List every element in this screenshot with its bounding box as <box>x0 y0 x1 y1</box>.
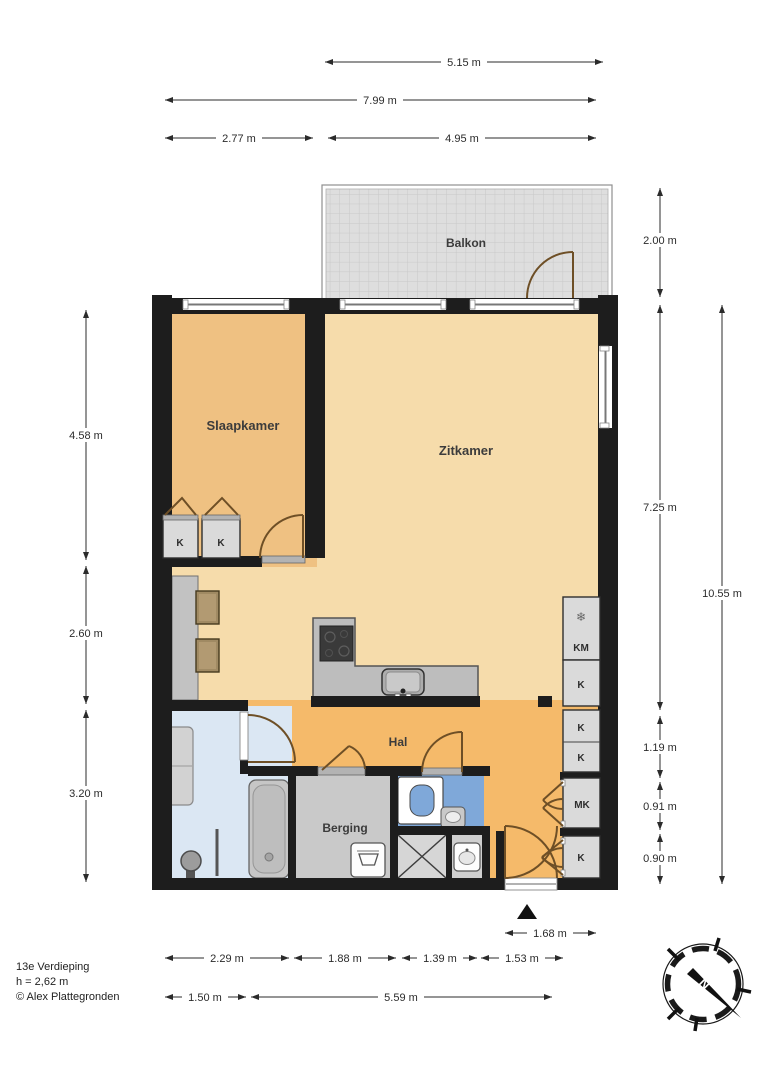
svg-text:2.00 m: 2.00 m <box>643 235 677 247</box>
svg-text:7.99 m: 7.99 m <box>363 95 397 107</box>
wall-entry-stub <box>496 831 505 878</box>
entrance-arrow <box>517 904 537 919</box>
label-closet-km: KM <box>573 643 589 654</box>
dim-top-799: 7.99 m <box>165 93 596 107</box>
wall-basinroom-right <box>482 826 490 878</box>
toilet-icon <box>398 777 443 824</box>
dim-bottom-188: 1.88 m <box>294 951 396 965</box>
window-living-right <box>470 299 579 310</box>
svg-text:1.50 m: 1.50 m <box>188 992 222 1004</box>
dim-bottom-139: 1.39 m <box>402 951 477 965</box>
dim-right-1055: 10.55 m <box>696 305 749 884</box>
label-closet-mk: MK <box>574 800 590 811</box>
dim-right-200: 2.00 m <box>637 188 683 297</box>
wall-berging-wc-divider <box>390 766 398 878</box>
label-closet-k: K <box>577 853 585 864</box>
dim-right-090: 0.90 m <box>637 834 683 884</box>
label-closet-k: K <box>577 753 585 764</box>
bar-stool <box>196 639 219 672</box>
svg-text:1.68 m: 1.68 m <box>533 928 567 940</box>
svg-text:0.91 m: 0.91 m <box>643 801 677 813</box>
label-closet-k: K <box>577 723 585 734</box>
window-east <box>599 346 612 428</box>
window-living-left <box>340 299 446 310</box>
svg-text:1.53 m: 1.53 m <box>505 953 539 965</box>
wall-bath-berging-divider <box>288 766 296 878</box>
wall-bathroom-top <box>152 700 248 711</box>
dim-bottom-168: 1.68 m <box>505 926 596 940</box>
dim-right-091: 0.91 m <box>637 782 683 830</box>
wall-hal-c <box>462 766 490 776</box>
side-counter <box>172 576 198 700</box>
svg-text:1.39 m: 1.39 m <box>423 953 457 965</box>
floorplan-page: Balkon Slaapkamer Zitkamer Hal Berging K… <box>0 0 764 1080</box>
floorplan-canvas: Balkon Slaapkamer Zitkamer Hal Berging K… <box>0 0 764 1080</box>
label-closet-k: K <box>217 538 225 549</box>
dim-bottom-559: 5.59 m <box>251 990 552 1004</box>
bathtub <box>249 780 289 878</box>
label-slaapkamer: Slaapkamer <box>207 418 280 433</box>
dim-right-725: 7.25 m <box>637 305 683 710</box>
svg-text:2.60 m: 2.60 m <box>69 628 103 640</box>
svg-text:7.25 m: 7.25 m <box>643 502 677 514</box>
wall-left <box>152 295 172 890</box>
label-closet-k: K <box>176 538 184 549</box>
svg-text:3.20 m: 3.20 m <box>69 788 103 800</box>
hand-basin-icon <box>441 807 465 828</box>
wall-wc-bottom <box>394 826 486 835</box>
utility-column <box>561 597 600 878</box>
bathroom-door-sill <box>240 712 248 760</box>
svg-text:2.29 m: 2.29 m <box>210 953 244 965</box>
front-door-sill <box>505 878 557 890</box>
svg-text:4.58 m: 4.58 m <box>69 430 103 442</box>
dim-bottom-150: 1.50 m <box>165 990 246 1004</box>
bar-stool <box>196 591 219 624</box>
wall-hal-stub <box>538 696 552 707</box>
basin-icon <box>454 843 480 871</box>
svg-text:4.95 m: 4.95 m <box>445 133 479 145</box>
north-needle <box>687 968 741 1018</box>
dim-left-320: 3.20 m <box>63 710 109 882</box>
snowflake-icon: ❄ <box>576 610 586 624</box>
window-bedroom <box>183 299 289 310</box>
wall-duct-divider <box>446 833 452 878</box>
wall-hal-a <box>248 766 318 776</box>
washing-machine-icon <box>351 843 385 877</box>
dim-top-495: 4.95 m <box>328 131 596 145</box>
dim-top-515: 5.15 m <box>325 55 603 69</box>
dim-left-260: 2.60 m <box>63 566 109 704</box>
svg-text:1.88 m: 1.88 m <box>328 953 362 965</box>
kitchen-sink <box>382 669 424 699</box>
bedroom-door-sill <box>262 556 305 563</box>
label-balkon: Balkon <box>446 236 486 250</box>
dim-bottom-153: 1.53 m <box>481 951 563 965</box>
cooktop <box>320 626 353 661</box>
footer-ceiling-height: h = 2,62 m <box>16 976 68 988</box>
dim-top-277: 2.77 m <box>165 131 313 145</box>
svg-text:2.77 m: 2.77 m <box>222 133 256 145</box>
wall-bedroom-right <box>305 298 325 558</box>
wall-kitchen <box>311 696 480 707</box>
footer-copyright: © Alex Plattegronden <box>16 991 120 1003</box>
footer: 13e Verdieping h = 2,62 m © Alex Platteg… <box>16 961 120 1003</box>
svg-text:5.15 m: 5.15 m <box>447 57 481 69</box>
label-berging: Berging <box>322 821 367 835</box>
label-hal: Hal <box>389 735 408 749</box>
dim-left-458: 4.58 m <box>63 310 109 560</box>
footer-floor-label: 13e Verdieping <box>16 961 89 973</box>
svg-text:0.90 m: 0.90 m <box>643 853 677 865</box>
wc-door-sill <box>422 768 462 775</box>
faucet-icon <box>401 689 406 694</box>
dim-bottom-229: 2.29 m <box>165 951 289 965</box>
dim-right-119: 1.19 m <box>637 716 683 778</box>
compass-rose: N <box>663 938 751 1031</box>
wall-closet-sep2 <box>560 828 600 836</box>
label-zitkamer: Zitkamer <box>439 443 493 458</box>
svg-text:5.59 m: 5.59 m <box>384 992 418 1004</box>
label-closet-k: K <box>577 680 585 691</box>
svg-text:10.55 m: 10.55 m <box>702 588 742 600</box>
svg-text:1.19 m: 1.19 m <box>643 742 677 754</box>
